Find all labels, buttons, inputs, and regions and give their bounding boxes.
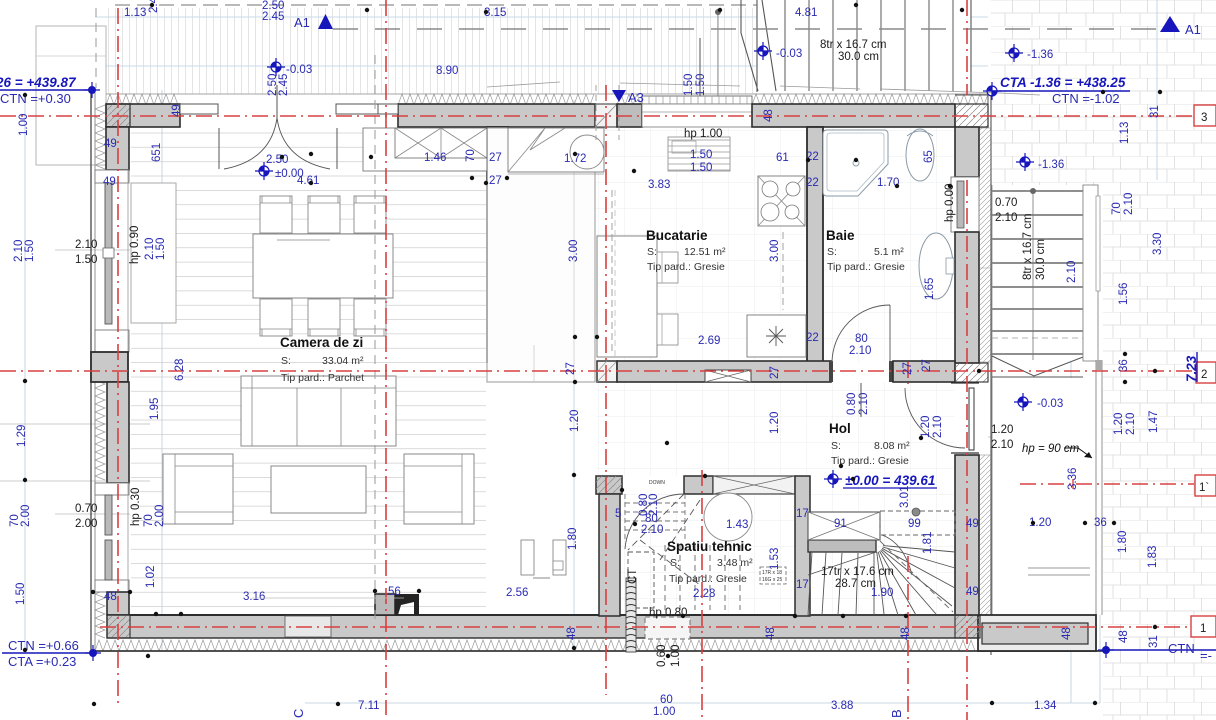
svg-text:5.1 m²: 5.1 m² (874, 246, 904, 258)
svg-text:CTN =+0.30: CTN =+0.30 (0, 91, 71, 106)
svg-text:1.53: 1.53 (769, 548, 781, 570)
svg-text:1.83: 1.83 (1147, 546, 1159, 568)
svg-text:1.00: 1.00 (653, 706, 675, 718)
svg-text:2.10: 2.10 (641, 524, 663, 536)
svg-text:1: 1 (1200, 623, 1206, 635)
svg-text:1.20: 1.20 (569, 410, 581, 432)
svg-text:70: 70 (465, 149, 477, 162)
svg-text:1.20: 1.20 (920, 416, 932, 438)
svg-text:80: 80 (855, 333, 868, 345)
svg-text:1.80: 1.80 (1117, 531, 1129, 553)
svg-text:27: 27 (489, 152, 502, 164)
svg-text:33.04 m²: 33.04 m² (322, 355, 364, 367)
svg-text:70: 70 (1111, 202, 1123, 215)
svg-text:2.10: 2.10 (1125, 413, 1137, 435)
svg-text:5: 5 (615, 508, 621, 520)
svg-text:36: 36 (1118, 359, 1130, 372)
svg-text:1.50: 1.50 (15, 583, 27, 605)
svg-text:31: 31 (1148, 635, 1160, 648)
svg-text:A3: A3 (628, 90, 644, 105)
svg-text:3.30: 3.30 (1152, 233, 1164, 255)
svg-text:-0.03: -0.03 (776, 48, 802, 60)
svg-text:2: 2 (1201, 369, 1207, 381)
svg-text:2.45: 2.45 (278, 74, 290, 96)
svg-text:2.50: 2.50 (266, 154, 288, 166)
svg-text:48: 48 (763, 109, 775, 122)
svg-text:Tip pard.: Gresie: Tip pard.: Gresie (827, 261, 905, 273)
svg-text:Tip pard.: Gresie: Tip pard.: Gresie (669, 573, 747, 585)
svg-text:30.0 cm: 30.0 cm (1035, 239, 1047, 280)
svg-text:B: B (889, 709, 904, 718)
svg-text:hp 0.90: hp 0.90 (129, 226, 141, 264)
svg-text:26 = +439.87: 26 = +439.87 (0, 75, 77, 90)
svg-text:±0.00: ±0.00 (275, 168, 304, 180)
svg-text:16G x 25: 16G x 25 (762, 577, 783, 583)
svg-text:1.13: 1.13 (1119, 122, 1131, 144)
svg-text:S:: S: (647, 246, 657, 258)
svg-text:1.65: 1.65 (924, 278, 936, 300)
svg-text:49: 49 (966, 586, 979, 598)
svg-text:49: 49 (171, 104, 183, 117)
svg-text:27: 27 (489, 175, 502, 187)
svg-text:49: 49 (966, 518, 979, 530)
svg-text:1.50: 1.50 (690, 149, 712, 161)
svg-text:22: 22 (806, 177, 819, 189)
svg-text:3.00: 3.00 (769, 240, 781, 262)
svg-text:1.50: 1.50 (155, 238, 167, 260)
svg-text:65: 65 (923, 150, 935, 163)
svg-text:Hol: Hol (829, 421, 851, 436)
svg-text:1.13: 1.13 (124, 7, 146, 19)
svg-text:-1.36: -1.36 (1027, 49, 1053, 61)
svg-text:17: 17 (796, 508, 809, 520)
svg-text:8tr x 16.7 cm: 8tr x 16.7 cm (1022, 214, 1034, 280)
svg-text:1.56: 1.56 (1118, 283, 1130, 305)
svg-text:6.28: 6.28 (174, 359, 186, 381)
svg-text:2.10: 2.10 (849, 345, 871, 357)
svg-text:1.29: 1.29 (16, 425, 28, 447)
svg-text:36: 36 (1094, 517, 1107, 529)
svg-text:hp 0.30: hp 0.30 (130, 488, 142, 526)
svg-text:99: 99 (908, 518, 921, 530)
svg-text:2.69: 2.69 (698, 335, 720, 347)
svg-text:8.08 m²: 8.08 m² (874, 440, 910, 452)
svg-text:1.81: 1.81 (922, 532, 934, 554)
svg-text:7.11: 7.11 (358, 700, 380, 712)
svg-text:S:: S: (281, 355, 291, 367)
svg-text:1.02: 1.02 (145, 566, 157, 588)
svg-text:Tip pard.: Parchet: Tip pard.: Parchet (281, 372, 364, 384)
svg-text:2.10: 2.10 (1123, 193, 1135, 215)
svg-text:27: 27 (565, 362, 577, 375)
svg-text:48: 48 (765, 627, 777, 640)
svg-text:12.51 m²: 12.51 m² (684, 246, 726, 258)
svg-text:3.88: 3.88 (831, 700, 853, 712)
svg-text:48: 48 (1118, 630, 1130, 643)
svg-text:48: 48 (104, 591, 117, 603)
svg-text:22: 22 (806, 332, 819, 344)
svg-text:2.00: 2.00 (75, 518, 97, 530)
svg-text:CT: CT (627, 569, 639, 584)
svg-text:31: 31 (1149, 105, 1161, 118)
svg-text:CTN =+0.66: CTN =+0.66 (8, 638, 79, 653)
svg-text:48: 48 (566, 627, 578, 640)
svg-text:2.10: 2.10 (858, 393, 870, 415)
svg-text:4.81: 4.81 (795, 7, 817, 19)
svg-text:0.70: 0.70 (995, 197, 1017, 209)
svg-text:2.10: 2.10 (75, 239, 97, 251)
svg-text:91: 91 (834, 518, 847, 530)
svg-text:-0.03: -0.03 (286, 64, 312, 76)
svg-text:Camera de zi: Camera de zi (280, 335, 363, 350)
svg-text:hp = 90 cm: hp = 90 cm (1022, 443, 1080, 455)
svg-text:3.00: 3.00 (568, 240, 580, 262)
svg-text:DOWN: DOWN (649, 480, 665, 486)
svg-text:Bucatarie: Bucatarie (646, 228, 708, 243)
svg-text:S:: S: (831, 440, 841, 452)
svg-text:2.10: 2.10 (932, 416, 944, 438)
svg-text:651: 651 (151, 143, 163, 162)
svg-text:27: 27 (902, 362, 914, 375)
svg-text:Tip pard.: Gresie: Tip pard.: Gresie (647, 261, 725, 273)
svg-text:1.50: 1.50 (690, 162, 712, 174)
svg-text:Spatiu tehnic: Spatiu tehnic (667, 539, 752, 554)
svg-text:-0.03: -0.03 (1037, 398, 1063, 410)
svg-text:hp 0.00: hp 0.00 (944, 184, 956, 222)
svg-text:A1: A1 (294, 15, 310, 30)
svg-text:2.00: 2.00 (154, 505, 166, 527)
svg-text:1.50: 1.50 (683, 74, 695, 96)
svg-text:56: 56 (388, 586, 401, 598)
svg-text:3.01: 3.01 (899, 486, 911, 508)
svg-text:1`: 1` (1199, 482, 1209, 494)
svg-text:CTA =+0.23: CTA =+0.23 (8, 654, 76, 669)
svg-text:3.83: 3.83 (648, 179, 670, 191)
svg-text:hp 1.00: hp 1.00 (684, 128, 722, 140)
svg-text:1.20: 1.20 (991, 424, 1013, 436)
svg-text:2.10: 2.10 (1066, 261, 1078, 283)
svg-text:2.28: 2.28 (693, 588, 715, 600)
svg-text:2.10: 2.10 (995, 212, 1017, 224)
svg-text:1.47: 1.47 (1148, 411, 1160, 433)
svg-text:2.00: 2.00 (20, 505, 32, 527)
svg-text:1.20: 1.20 (769, 412, 781, 434)
svg-text:S:: S: (827, 246, 837, 258)
svg-text:2.10: 2.10 (991, 439, 1013, 451)
svg-text:1.46: 1.46 (424, 152, 446, 164)
svg-text:8tr x 16.7 cm: 8tr x 16.7 cm (820, 39, 886, 51)
svg-text:C: C (291, 709, 306, 718)
svg-text:1.50: 1.50 (24, 240, 36, 262)
svg-text:60: 60 (660, 694, 673, 706)
svg-text:3.16: 3.16 (243, 591, 265, 603)
svg-text:8.90: 8.90 (436, 65, 458, 77)
svg-text:±0.00 = 439.61: ±0.00 = 439.61 (845, 473, 935, 488)
svg-text:CTN =-1.02: CTN =-1.02 (1052, 91, 1120, 106)
svg-text:1.95: 1.95 (149, 398, 161, 420)
svg-text:27: 27 (769, 366, 781, 379)
svg-text:2.45: 2.45 (148, 0, 160, 13)
svg-text:48: 48 (900, 627, 912, 640)
svg-text:0.70: 0.70 (75, 503, 97, 515)
svg-text:49: 49 (104, 138, 117, 150)
svg-text:2.10: 2.10 (648, 494, 660, 516)
svg-text:S:: S: (670, 557, 680, 569)
svg-text:2.45: 2.45 (262, 11, 284, 23)
svg-text:3: 3 (1201, 112, 1207, 124)
svg-text:27: 27 (921, 359, 933, 372)
svg-text:CTA -1.36 = +438.25: CTA -1.36 = +438.25 (1000, 75, 1126, 90)
svg-text:17: 17 (796, 579, 809, 591)
svg-text:17tr x 17.6 cm: 17tr x 17.6 cm (821, 566, 894, 578)
svg-text:48: 48 (1061, 627, 1073, 640)
svg-text:CTN: CTN (1168, 641, 1195, 656)
svg-text:61: 61 (776, 152, 789, 164)
svg-text:A1: A1 (1185, 22, 1201, 37)
svg-text:1.80: 1.80 (567, 528, 579, 550)
svg-text:0.80: 0.80 (846, 393, 858, 415)
svg-text:1.43: 1.43 (726, 519, 748, 531)
svg-text:2.56: 2.56 (506, 587, 528, 599)
svg-text:3.36: 3.36 (1067, 468, 1079, 490)
svg-text:1.50: 1.50 (75, 254, 97, 266)
svg-text:Baie: Baie (826, 228, 855, 243)
svg-text:49: 49 (103, 176, 116, 188)
svg-text:1.20: 1.20 (1113, 413, 1125, 435)
svg-text:-1.36: -1.36 (1038, 159, 1064, 171)
svg-text:1.50: 1.50 (695, 74, 707, 96)
svg-text:1.34: 1.34 (1034, 700, 1057, 712)
svg-text:1.00: 1.00 (670, 645, 682, 667)
svg-text:=-: =- (1200, 648, 1212, 663)
svg-text:3.48 m²: 3.48 m² (717, 557, 753, 569)
svg-text:1.00: 1.00 (18, 114, 30, 136)
svg-text:28.7 cm: 28.7 cm (835, 578, 876, 590)
svg-text:30.0 cm: 30.0 cm (838, 51, 879, 63)
